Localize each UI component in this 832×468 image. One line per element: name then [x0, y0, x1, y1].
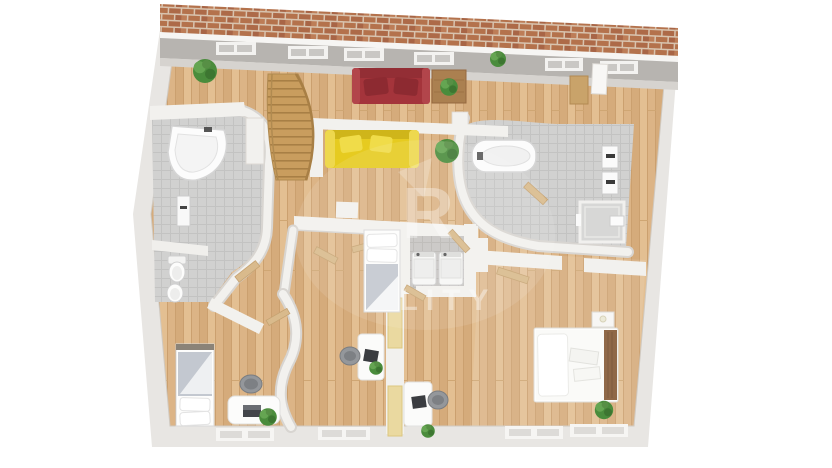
office-chair-seat	[432, 395, 444, 405]
sofa-cushion	[339, 135, 363, 154]
watermark: R LITY	[295, 140, 555, 330]
potted-plant	[490, 51, 506, 67]
skylight-window	[288, 46, 328, 59]
toilet	[168, 256, 186, 282]
watermark-text: LITY	[400, 284, 497, 317]
folded-blanket	[573, 367, 600, 382]
office-chair-seat	[244, 379, 258, 390]
wall-cabinet	[246, 118, 264, 164]
floorplan-svg: R LITY	[0, 0, 832, 468]
office-chair-seat	[344, 351, 356, 361]
radiator-valve	[606, 154, 615, 158]
headboard	[604, 330, 617, 400]
pine-wall-panel	[388, 386, 402, 436]
small-basin	[610, 216, 624, 226]
skylight-window	[216, 42, 256, 55]
skylight-window	[344, 48, 384, 61]
white-door	[591, 64, 608, 95]
pillow	[180, 397, 210, 411]
sofa-cushion	[363, 77, 389, 97]
window	[216, 428, 274, 441]
skylight-window	[545, 58, 583, 71]
window	[505, 426, 563, 439]
double-bed	[534, 328, 618, 402]
skylight-window	[414, 52, 454, 65]
single-bed-left	[176, 344, 214, 426]
potted-plant	[369, 361, 383, 375]
window	[318, 427, 370, 440]
coffee-table	[432, 70, 466, 103]
bathtub-faucet	[204, 127, 212, 132]
wall-desk	[570, 76, 588, 104]
pillow	[537, 334, 568, 397]
potted-plant	[193, 59, 217, 83]
radiator-valve	[180, 206, 187, 209]
shower-handle	[576, 214, 581, 226]
laptop	[411, 395, 427, 409]
lamp	[600, 316, 606, 322]
radiator-valve	[606, 180, 615, 184]
potted-plant	[440, 78, 458, 96]
watermark-monogram: R	[402, 174, 454, 254]
desk	[404, 382, 432, 426]
laptop	[363, 349, 379, 363]
laptop-screen	[243, 405, 261, 410]
potted-plant	[421, 424, 435, 438]
sofa-cushion	[393, 77, 419, 96]
potted-plant	[595, 401, 613, 419]
window	[570, 424, 628, 437]
potted-plant	[259, 408, 277, 426]
pillow	[180, 411, 211, 426]
bidet	[167, 284, 183, 302]
towel-radiator	[177, 196, 190, 226]
bed-frame-trim	[176, 344, 214, 350]
floorplan-render: R LITY	[0, 0, 832, 468]
red-sofa	[352, 68, 430, 104]
